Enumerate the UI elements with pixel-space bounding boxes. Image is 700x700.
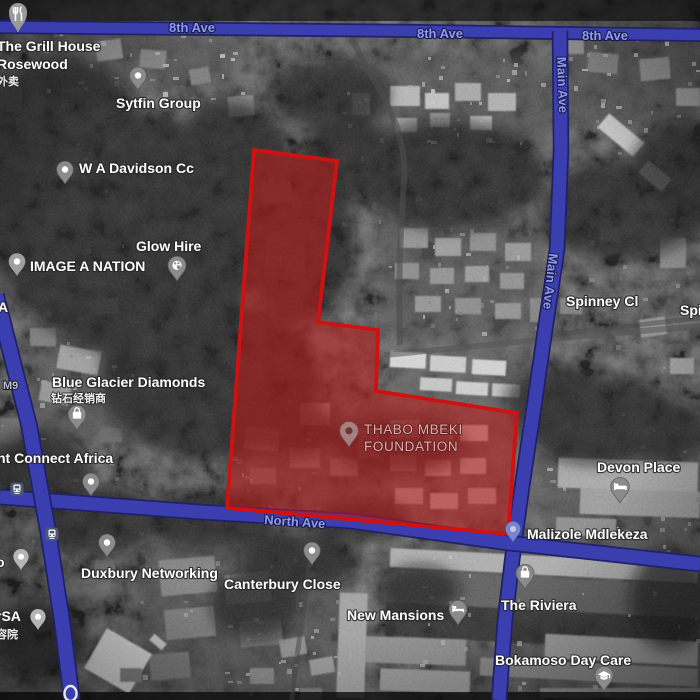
svg-text:8th Ave: 8th Ave bbox=[417, 26, 463, 41]
svg-text:rSA: rSA bbox=[0, 608, 21, 624]
svg-text:IMAGE A NATION: IMAGE A NATION bbox=[30, 258, 145, 274]
svg-text:Sytfin Group: Sytfin Group bbox=[116, 95, 201, 111]
svg-text:o: o bbox=[0, 554, 5, 570]
svg-text:Spi: Spi bbox=[680, 302, 700, 318]
svg-text:Devon Place: Devon Place bbox=[597, 459, 680, 475]
svg-text:The Grill House: The Grill House bbox=[0, 38, 101, 54]
svg-text:Canterbury Close: Canterbury Close bbox=[224, 576, 341, 592]
svg-text:外卖: 外卖 bbox=[0, 74, 19, 88]
svg-text:A: A bbox=[0, 299, 8, 315]
svg-text:钻石经销商: 钻石经销商 bbox=[51, 391, 106, 405]
svg-text:Malizole Mdlekeza: Malizole Mdlekeza bbox=[527, 526, 648, 542]
svg-text:8th Ave: 8th Ave bbox=[169, 20, 215, 35]
svg-text:Duxbury Networking: Duxbury Networking bbox=[81, 565, 218, 581]
svg-text:8th Ave: 8th Ave bbox=[582, 28, 628, 43]
svg-text:Main Ave: Main Ave bbox=[554, 57, 571, 114]
svg-text:Bokamoso Day Care: Bokamoso Day Care bbox=[495, 652, 631, 668]
svg-text:容院: 容院 bbox=[0, 627, 18, 641]
svg-text:Glow Hire: Glow Hire bbox=[136, 238, 202, 254]
svg-text:Spinney Cl: Spinney Cl bbox=[566, 293, 638, 309]
svg-text:THABO MBEKI: THABO MBEKI bbox=[364, 422, 463, 437]
svg-text:M9: M9 bbox=[3, 380, 18, 392]
svg-text:Blue Glacier Diamonds: Blue Glacier Diamonds bbox=[52, 374, 205, 390]
svg-text:FOUNDATION: FOUNDATION bbox=[364, 439, 458, 454]
svg-text:W A Davidson Cc: W A Davidson Cc bbox=[79, 160, 194, 176]
svg-text:The Riviera: The Riviera bbox=[501, 597, 577, 613]
svg-text:nt Connect Africa: nt Connect Africa bbox=[0, 450, 113, 466]
svg-text:Rosewood: Rosewood bbox=[0, 56, 68, 72]
svg-text:New Mansions: New Mansions bbox=[347, 607, 444, 623]
